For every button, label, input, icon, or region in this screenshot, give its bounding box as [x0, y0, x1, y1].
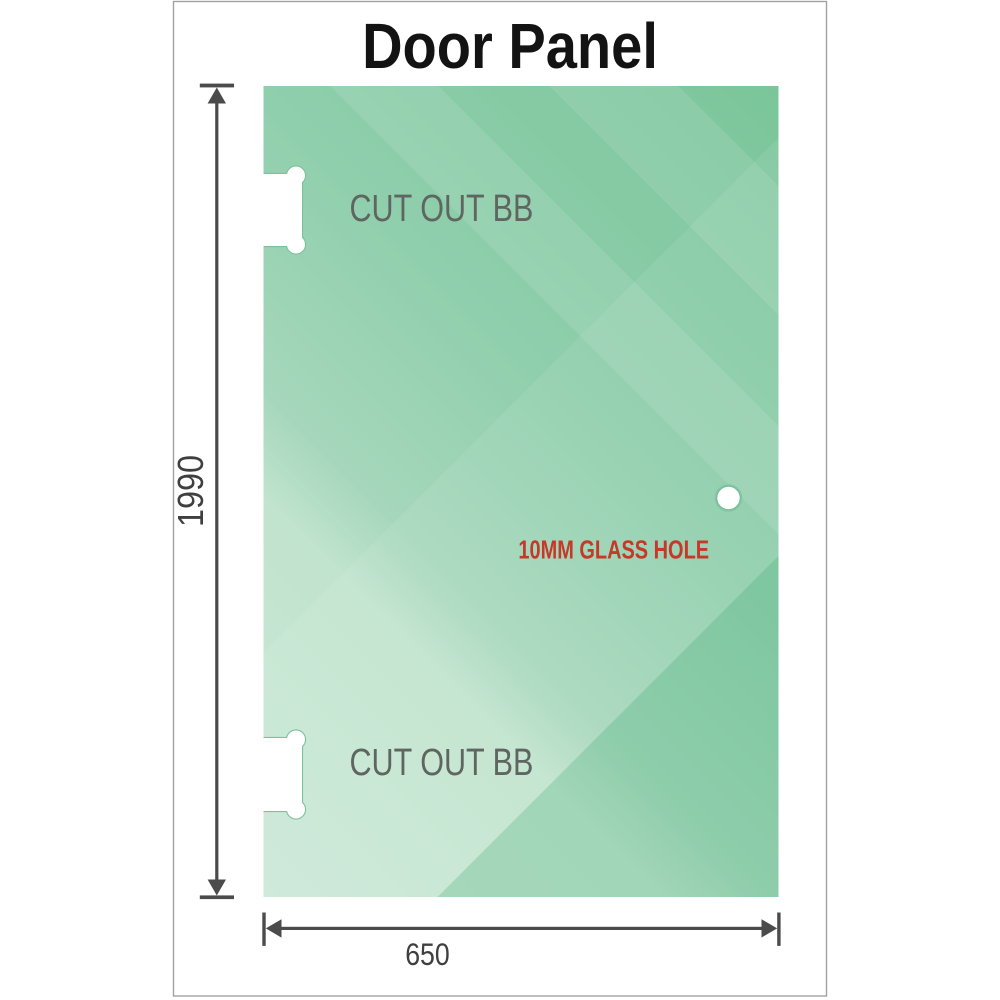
- svg-text:650: 650: [405, 938, 450, 972]
- svg-text:1990: 1990: [171, 455, 211, 527]
- svg-text:Door Panel: Door Panel: [362, 9, 658, 81]
- svg-text:CUT OUT BB: CUT OUT BB: [350, 742, 534, 784]
- svg-text:CUT OUT BB: CUT OUT BB: [350, 188, 534, 230]
- svg-text:10MM GLASS HOLE: 10MM GLASS HOLE: [518, 535, 709, 564]
